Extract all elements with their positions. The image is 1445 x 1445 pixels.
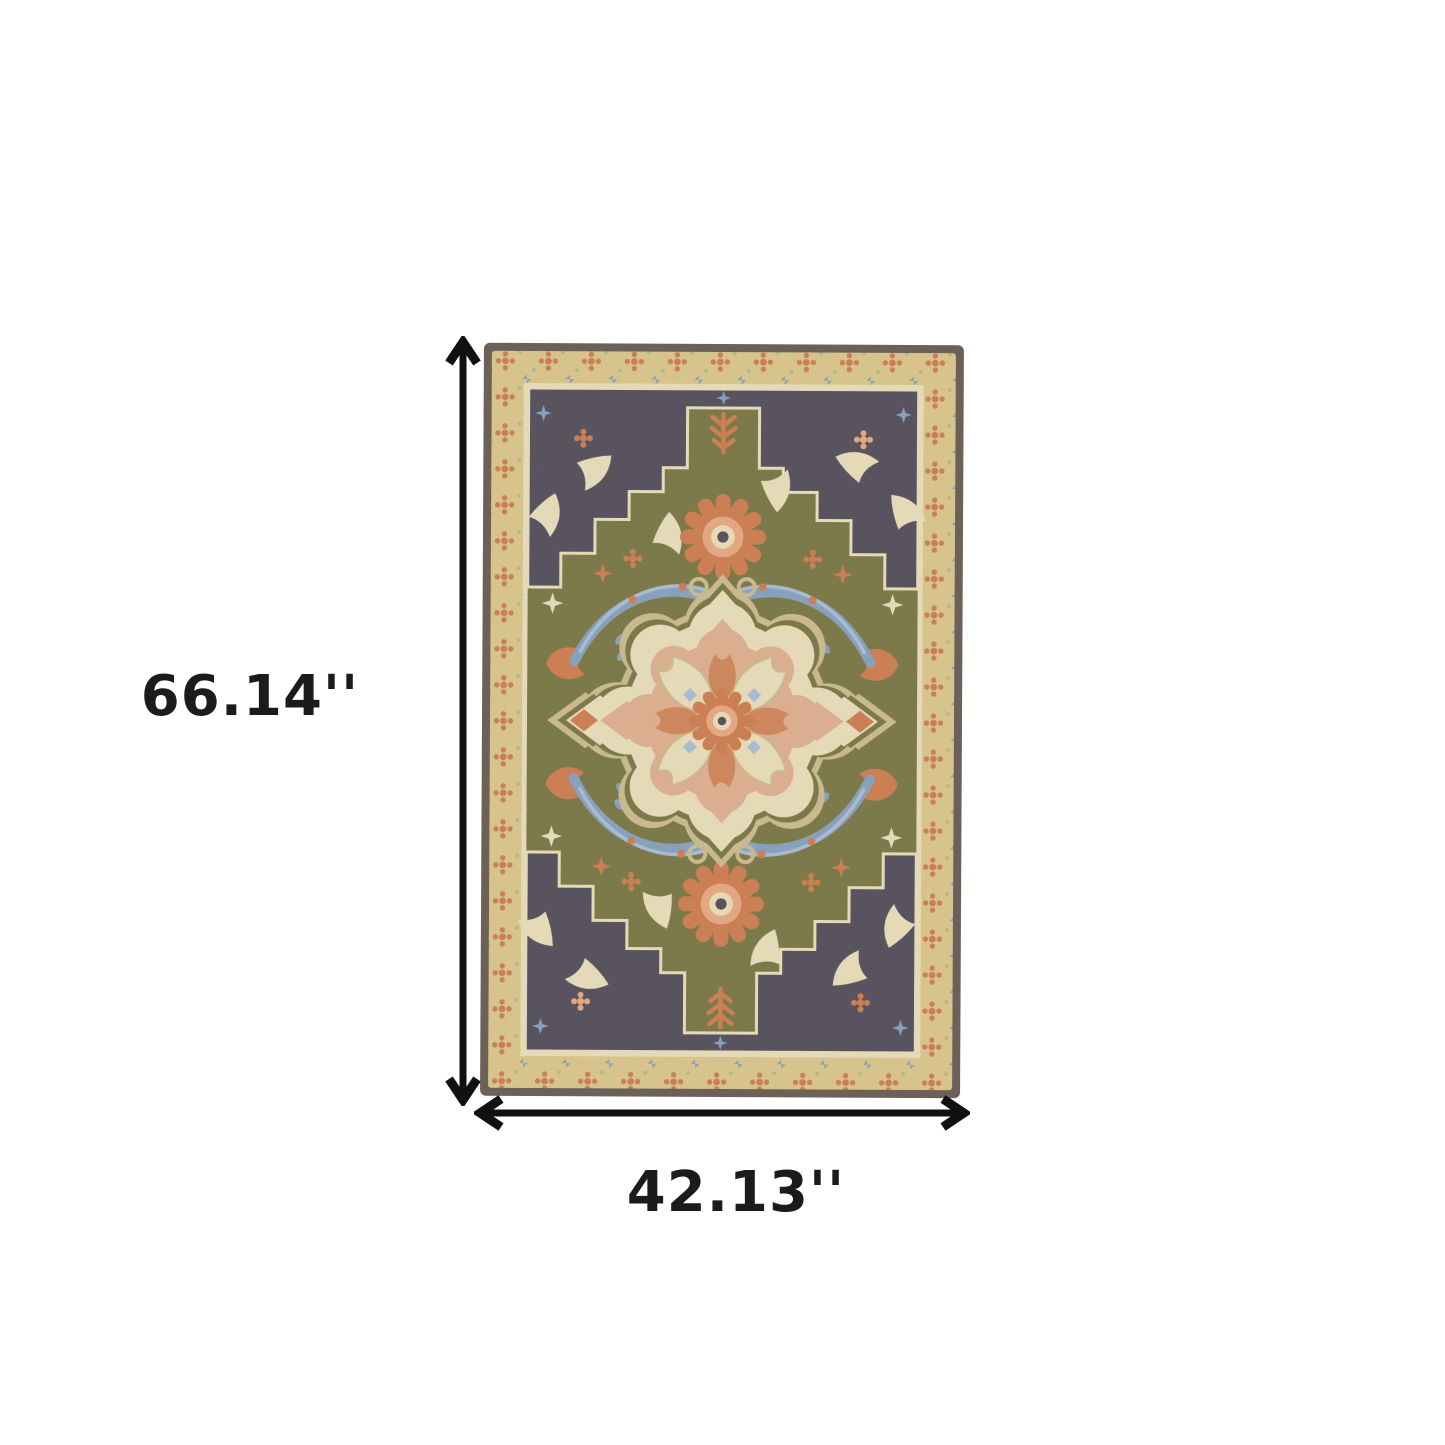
product-dimension-figure: 66.14'' 42.13'' bbox=[0, 0, 1445, 1445]
vertical-double-arrow-icon bbox=[445, 336, 481, 1106]
height-dimension-label: 66.14'' bbox=[110, 662, 390, 732]
width-dimension-label: 42.13'' bbox=[596, 1158, 876, 1228]
width-dimension-arrow bbox=[474, 1095, 970, 1131]
wool-texture-overlay bbox=[480, 343, 964, 1099]
horizontal-double-arrow-icon bbox=[474, 1095, 970, 1131]
height-dimension-arrow bbox=[445, 336, 481, 1106]
rug-photo bbox=[480, 343, 964, 1099]
rug-illustration bbox=[480, 343, 964, 1099]
